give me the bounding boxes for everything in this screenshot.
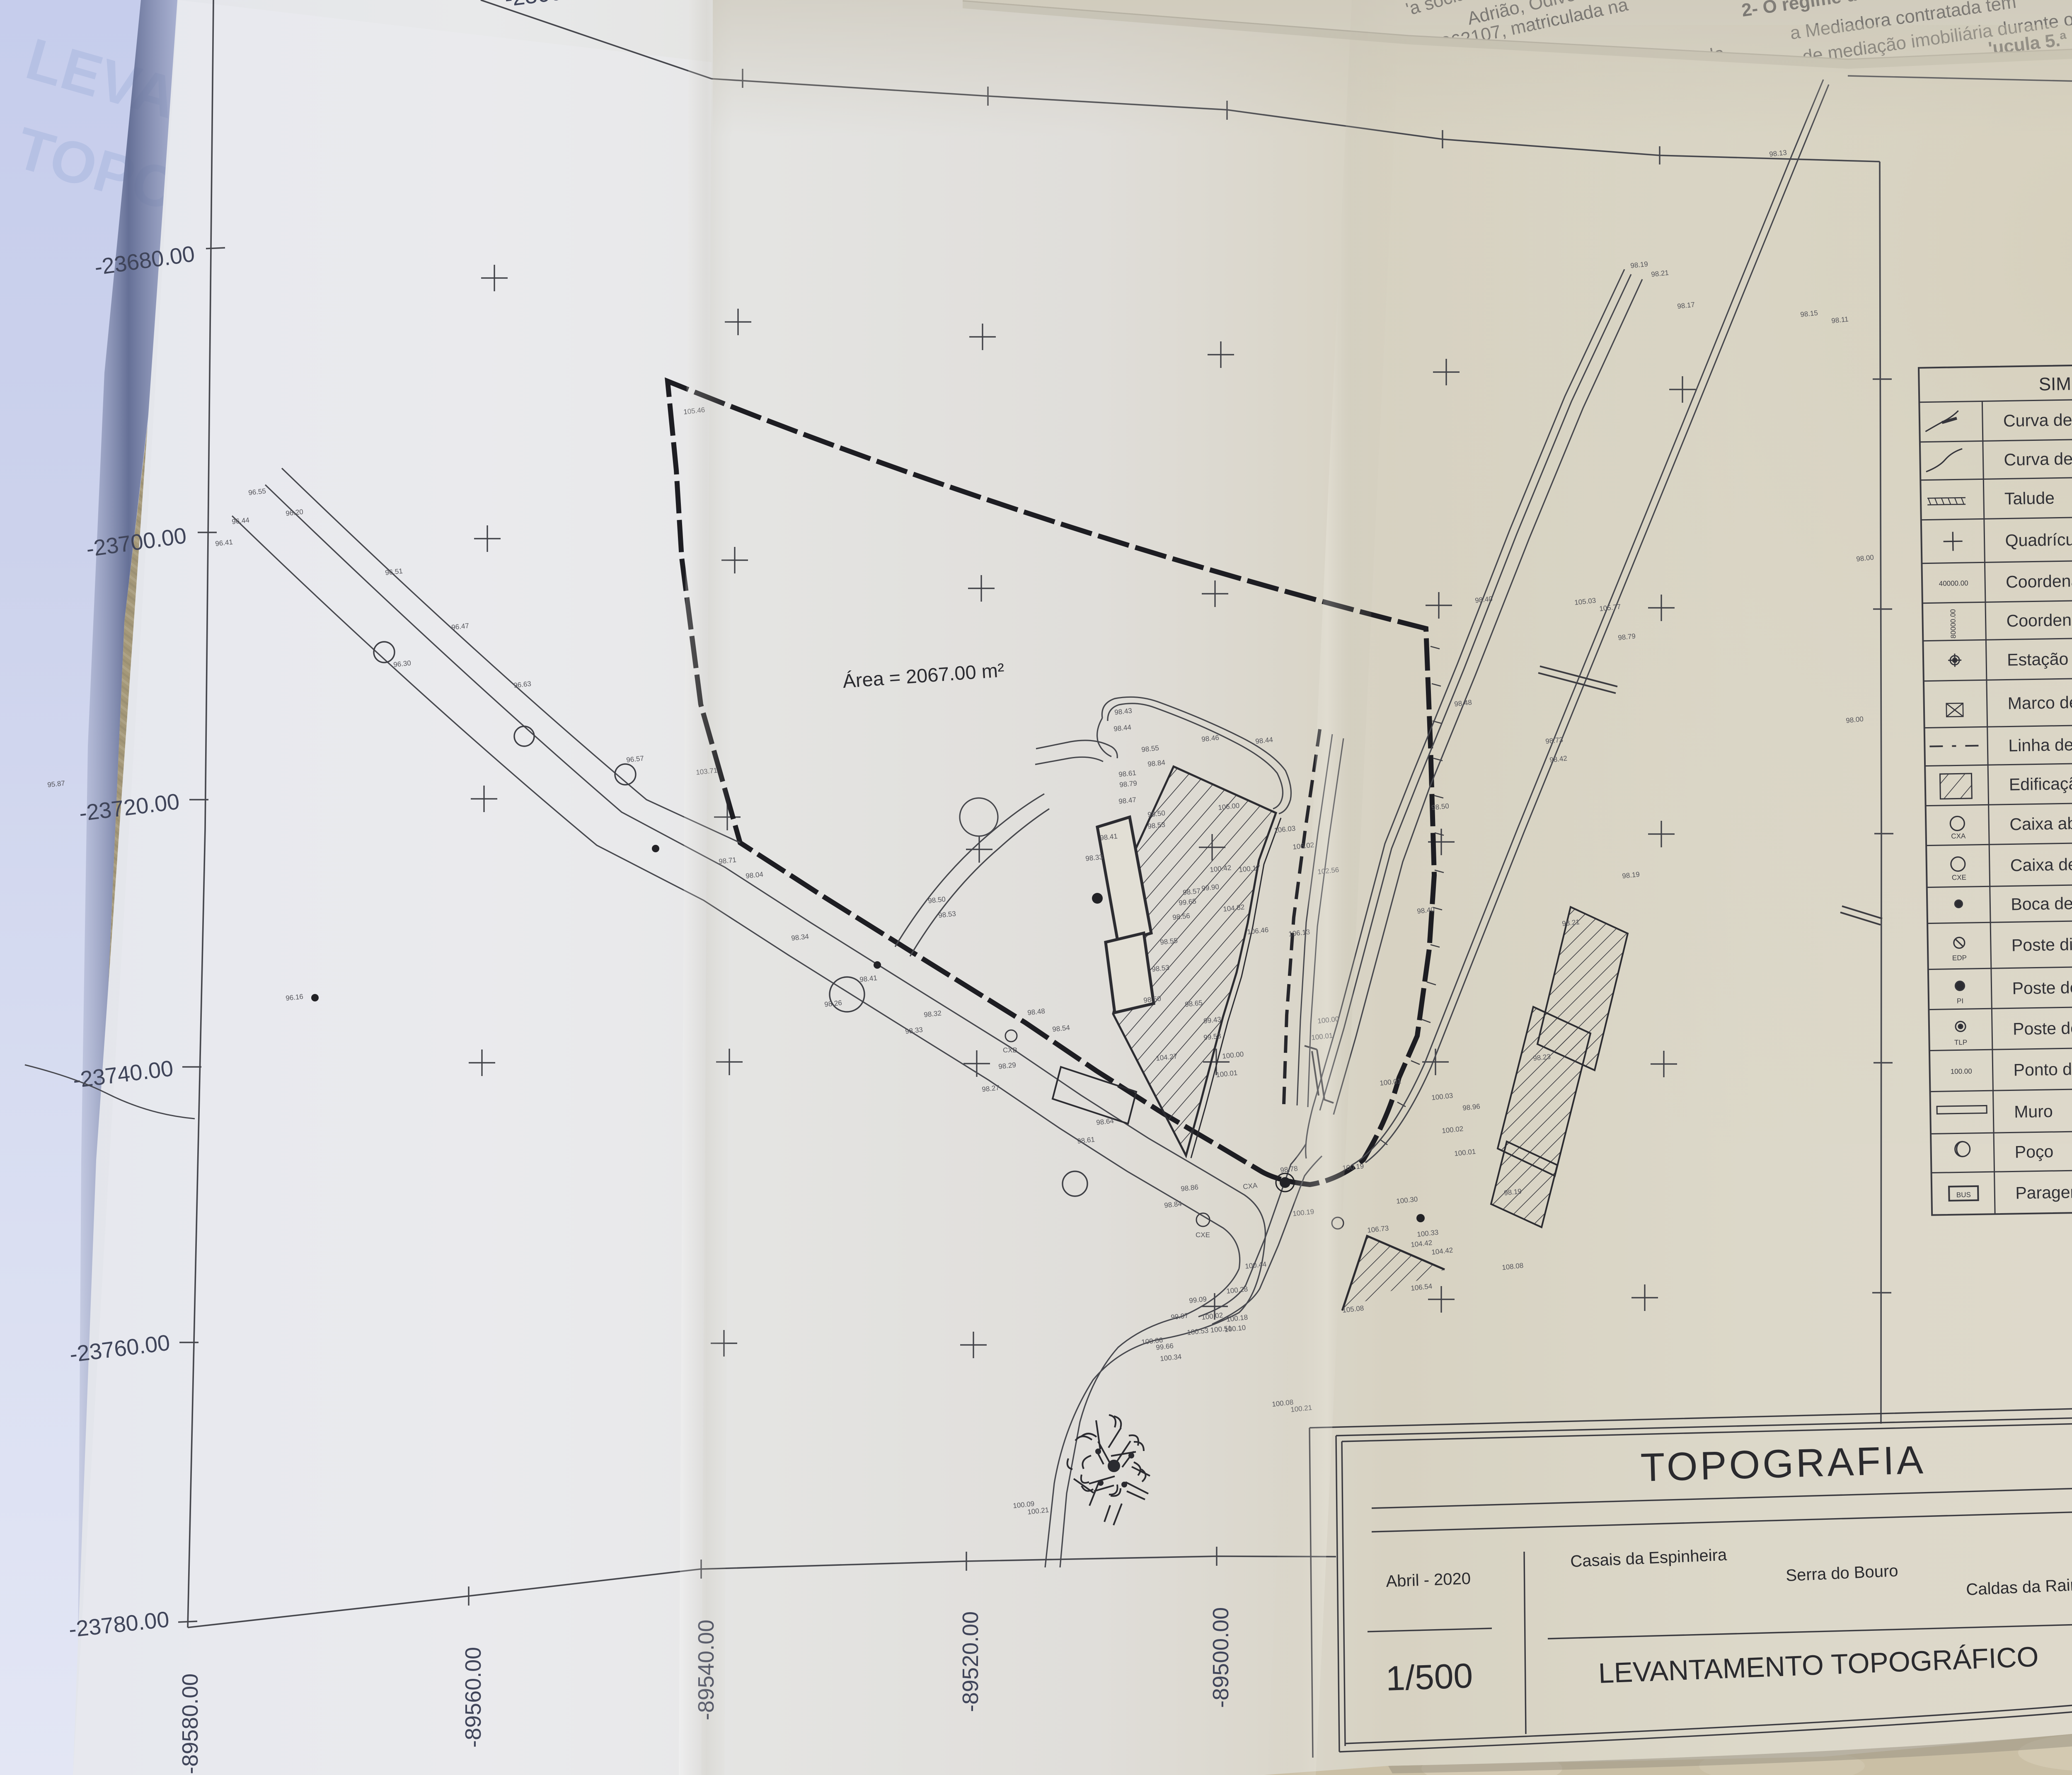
svg-text:Poste distribuição EDP: Poste distribuição EDP	[2011, 933, 2072, 955]
svg-text:80000.00: 80000.00	[1949, 609, 1957, 638]
svg-text:SIMBOLOGIA: SIMBOLOGIA	[2038, 372, 2072, 394]
svg-text:Marco de estrema de propriedad: Marco de estrema de propriedade	[2007, 690, 2072, 713]
svg-text:Muro: Muro	[2014, 1102, 2053, 1121]
svg-text:-89560.00: -89560.00	[461, 1647, 486, 1748]
svg-text:Poste de iluminação: Poste de iluminação	[2012, 977, 2072, 998]
svg-text:CXA: CXA	[1951, 832, 1966, 840]
svg-text:PI: PI	[1957, 997, 1963, 1005]
svg-text:Edificação: Edificação	[2009, 774, 2072, 794]
svg-text:Caixa abastecimento de água: Caixa abastecimento de água	[2009, 811, 2072, 834]
svg-text:-89580.00: -89580.00	[178, 1673, 203, 1774]
svg-text:EDP: EDP	[1952, 954, 1967, 962]
svg-text:-89520.00: -89520.00	[958, 1611, 983, 1712]
svg-text:CXE: CXE	[1952, 873, 1966, 882]
svg-text:Paragem BUS: Paragem BUS	[2015, 1182, 2072, 1202]
svg-text:100.00: 100.00	[1951, 1067, 1972, 1076]
svg-text:-89500.00: -89500.00	[1208, 1607, 1233, 1708]
svg-text:Estação: Estação	[2007, 649, 2069, 669]
svg-text:CXE: CXE	[1196, 1231, 1210, 1239]
svg-text:Curva de nível secundária: Curva de nível secundária	[2004, 447, 2072, 469]
svg-text:Ponto de cota: Ponto de cota	[2013, 1059, 2072, 1079]
svg-text:Talude: Talude	[2004, 488, 2055, 508]
svg-text:TOPOGRAFIA: TOPOGRAFIA	[1640, 1438, 1926, 1490]
svg-text:Quadrícula de coordenação: Quadrícula de coordenação	[2005, 528, 2072, 550]
svg-text:Curva de nível mestra com cota: Curva de nível mestra com cota	[2003, 408, 2072, 430]
svg-text:TLP: TLP	[1954, 1038, 1967, 1046]
svg-text:Abril - 2020: Abril - 2020	[1386, 1569, 1471, 1591]
svg-text:Coordenada p: Coordenada p	[2006, 571, 2072, 591]
svg-text:40000.00: 40000.00	[1939, 579, 1968, 588]
svg-text:Coordenada m: Coordenada m	[2006, 609, 2072, 630]
svg-text:Caixa de esgoto doméstico: Caixa de esgoto doméstico	[2010, 853, 2072, 875]
svg-text:Boca de incêndio: Boca de incêndio	[2011, 893, 2072, 914]
svg-text:BUS: BUS	[1956, 1191, 1971, 1199]
svg-text:CXA: CXA	[1242, 1181, 1258, 1191]
svg-text:CXB: CXB	[1003, 1046, 1017, 1054]
svg-text:Linha de estrema: Linha de estrema	[2008, 734, 2072, 755]
svg-text:Poste de telecomunicações: Poste de telecomunicações	[2013, 1016, 2072, 1039]
svg-text:Poço: Poço	[2014, 1142, 2053, 1161]
svg-text:1/500: 1/500	[1385, 1656, 1473, 1698]
